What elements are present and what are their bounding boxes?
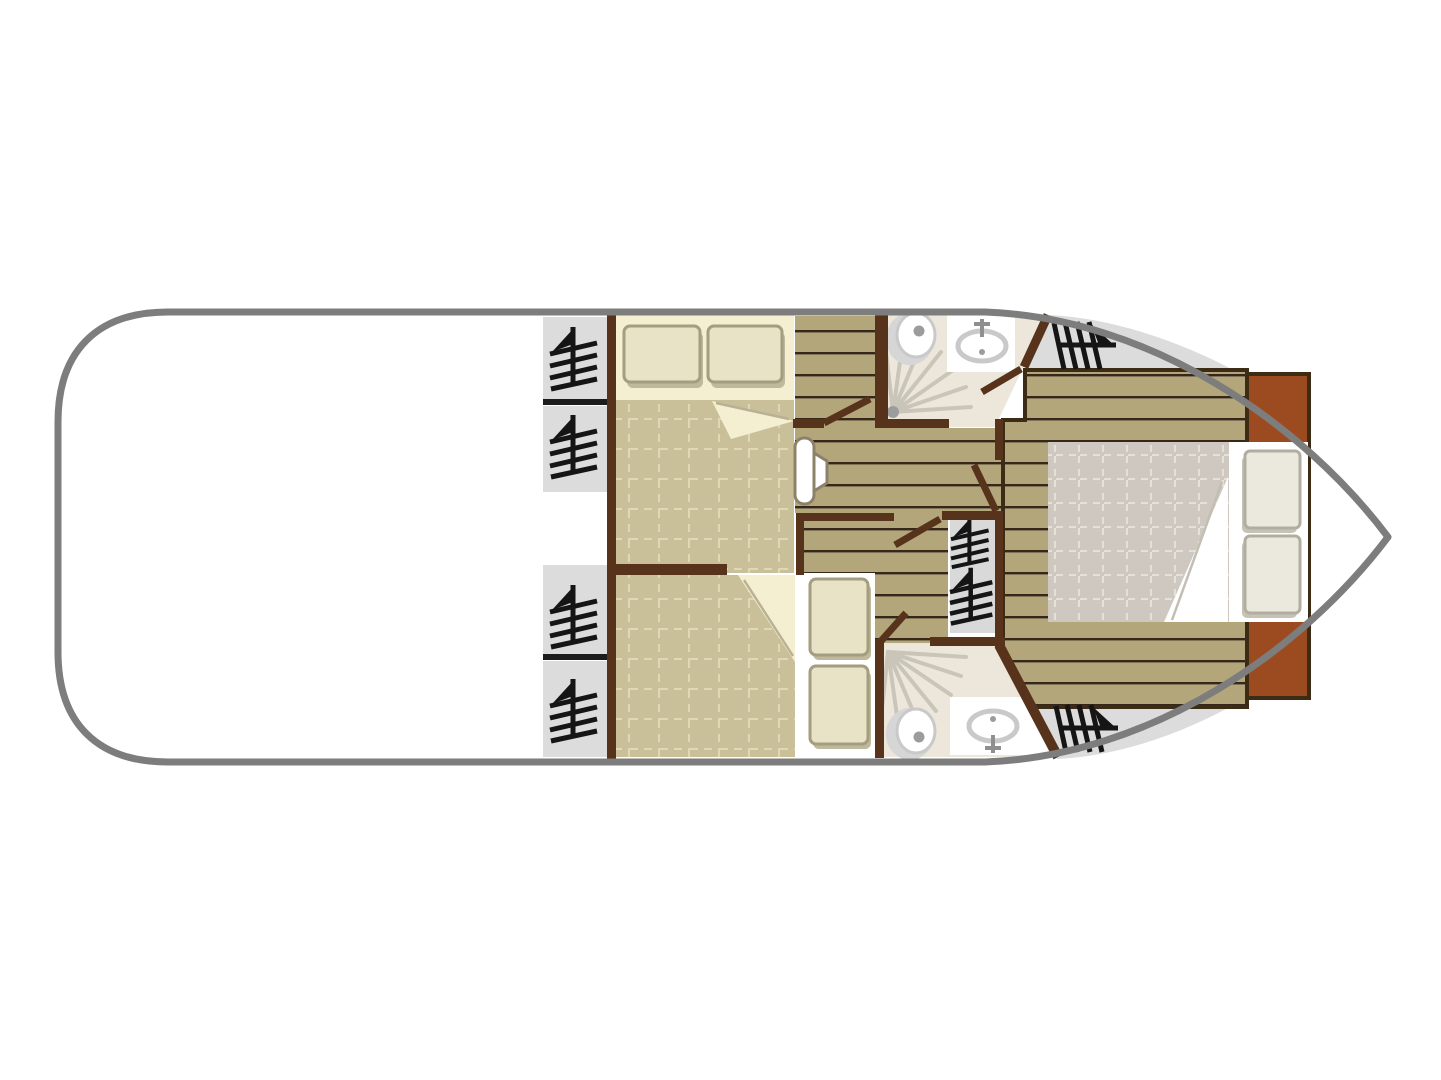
wall-bath-top-left bbox=[875, 315, 888, 422]
wall-stairs-top bbox=[942, 511, 1003, 520]
pillow bbox=[810, 579, 868, 655]
toilet-flush bbox=[914, 326, 925, 337]
companionway-stairs bbox=[950, 518, 995, 633]
wall-bath-bottom-left bbox=[875, 639, 884, 758]
toilet-icon bbox=[897, 709, 935, 753]
cabin-entry-floor bbox=[795, 316, 875, 428]
wall-corner bbox=[995, 419, 1003, 460]
wall-passage-vertical bbox=[796, 513, 804, 575]
wall-bath-top-bottom bbox=[875, 419, 949, 428]
window-divider bbox=[543, 654, 609, 660]
sink-drain bbox=[990, 716, 996, 722]
wall-passage-horizontal bbox=[798, 513, 894, 521]
bed-bow bbox=[1048, 442, 1308, 622]
bed-aft-bottom bbox=[616, 573, 875, 757]
wall-between-cabins bbox=[607, 564, 727, 575]
pillow bbox=[624, 326, 700, 382]
pillow bbox=[708, 326, 782, 382]
window-divider bbox=[543, 399, 609, 405]
wall-main-vertical bbox=[607, 315, 616, 759]
toilet-flush bbox=[914, 732, 925, 743]
bed-aft-top bbox=[616, 315, 794, 573]
pillow bbox=[1245, 536, 1300, 613]
pillow bbox=[1245, 451, 1300, 528]
boat-floor-plan bbox=[0, 0, 1441, 1080]
seat-back bbox=[795, 438, 814, 504]
shower-drain bbox=[887, 406, 899, 418]
wall-cabin-top-door bbox=[793, 419, 824, 428]
sink-drain bbox=[979, 349, 985, 355]
floor-plan-canvas bbox=[0, 0, 1441, 1080]
wall-stairs-right bbox=[995, 511, 1003, 647]
pillow bbox=[810, 666, 868, 744]
wall-bath-bottom-top bbox=[930, 637, 1005, 646]
seat-pad bbox=[814, 453, 827, 491]
